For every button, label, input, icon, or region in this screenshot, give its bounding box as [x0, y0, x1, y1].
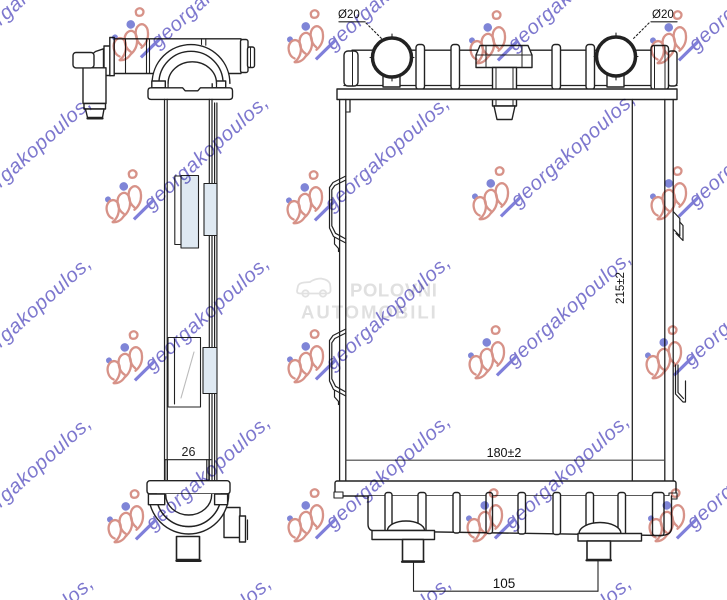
svg-text:Ø20: Ø20 — [652, 9, 674, 21]
svg-text:26: 26 — [182, 445, 196, 459]
svg-text:105: 105 — [493, 576, 516, 591]
svg-text:180±2: 180±2 — [487, 446, 522, 460]
